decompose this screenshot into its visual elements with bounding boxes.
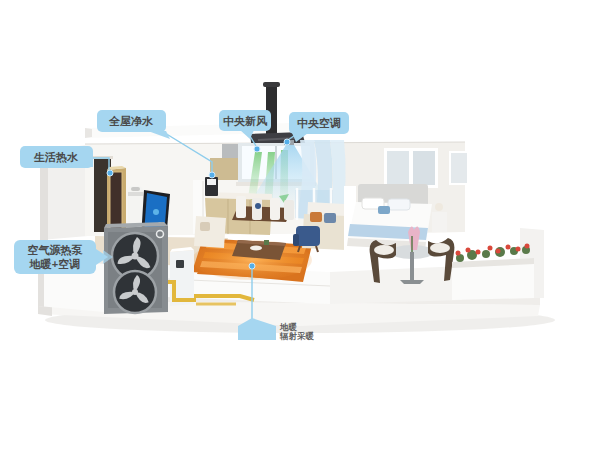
- label-heat-pump-line2: 地暖+空调: [29, 258, 80, 270]
- illustration-stage: 全屋净水 生活热水 中央新风 中央空调 空气源热泵 地暖+空调 地暖: [0, 0, 600, 450]
- label-central-ac: 中央空调: [297, 117, 341, 129]
- heat-pump-unit: [104, 222, 168, 314]
- bedroom-windows: [384, 148, 468, 188]
- label-heat-pump-line1: 空气源热泵: [28, 244, 84, 257]
- garden-planter: [452, 228, 544, 300]
- house-cutaway-illustration: 全屋净水 生活热水 中央新风 中央空调 空气源热泵 地暖+空调 地暖: [0, 0, 600, 450]
- label-water-purification: 全屋净水: [108, 115, 154, 127]
- label-floor-heating-line2: 辐射采暖: [279, 331, 315, 341]
- label-domestic-hot-water: 生活热水: [33, 151, 79, 164]
- label-fresh-air: 中央新风: [223, 115, 268, 127]
